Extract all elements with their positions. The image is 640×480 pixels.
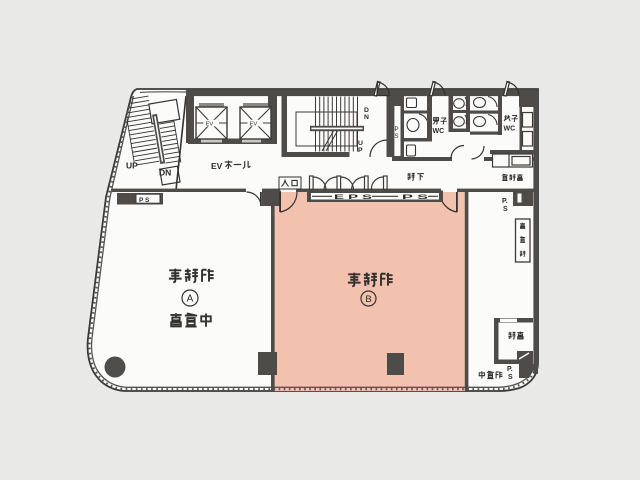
svg-text:B: B: [365, 294, 371, 305]
svg-text:N: N: [364, 114, 369, 121]
svg-text:S: S: [503, 206, 508, 213]
svg-text:WC: WC: [504, 126, 516, 133]
svg-text:DN: DN: [159, 168, 171, 178]
svg-text:UP: UP: [126, 161, 138, 171]
svg-text:P S: P S: [139, 197, 150, 204]
svg-text:U: U: [358, 140, 363, 147]
svg-text:P: P: [395, 127, 399, 133]
svg-text:S: S: [508, 374, 513, 381]
svg-text:P.: P.: [507, 366, 513, 373]
svg-text:D: D: [364, 107, 369, 114]
svg-text:S: S: [395, 134, 399, 140]
svg-text:E P S: E P S: [334, 194, 373, 201]
svg-text:EV: EV: [211, 161, 223, 171]
svg-text:P.: P.: [502, 198, 508, 205]
svg-text:P: P: [358, 147, 363, 154]
svg-text:EV: EV: [206, 122, 214, 128]
svg-text:EV: EV: [250, 122, 258, 128]
svg-text:A: A: [187, 294, 194, 305]
svg-text:WC: WC: [433, 128, 445, 135]
svg-text:P S: P S: [402, 194, 430, 201]
